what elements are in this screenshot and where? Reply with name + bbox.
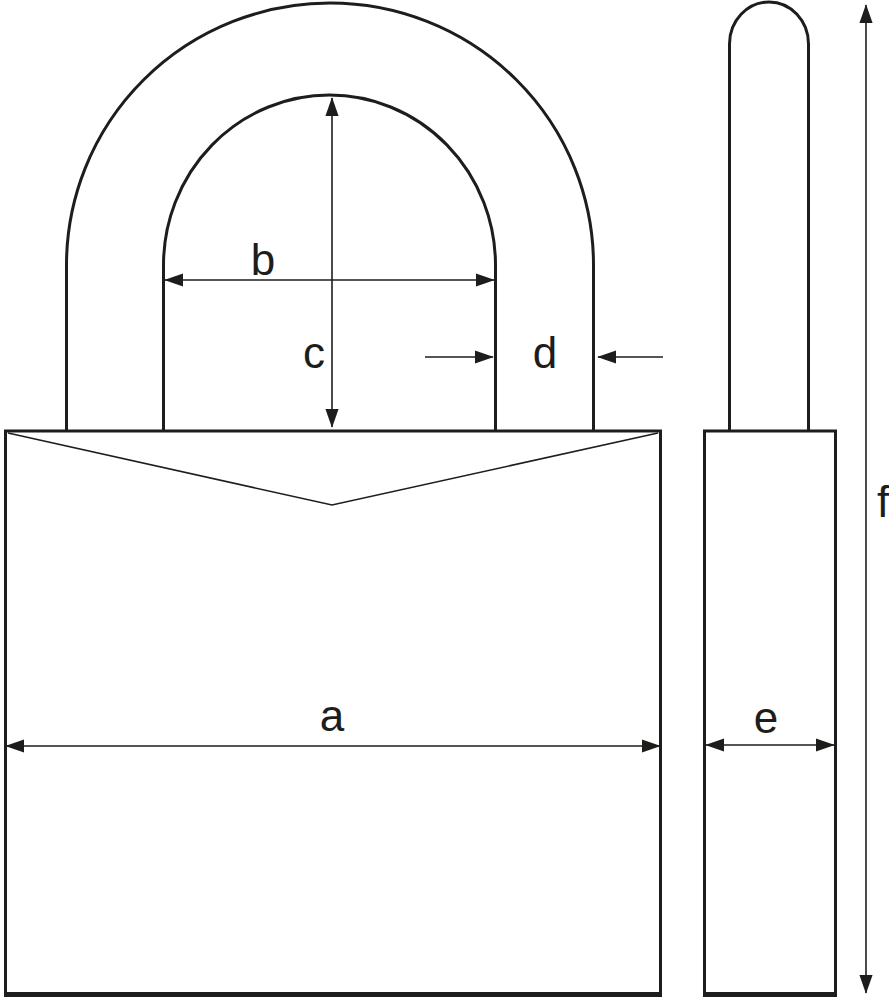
dimension-c: c (303, 98, 332, 427)
dimension-e: e (706, 693, 834, 745)
dimension-f-label: f (877, 477, 889, 526)
padlock-dimension-diagram: a b c d e f (0, 0, 889, 1000)
dimension-b-label: b (251, 235, 275, 284)
diagram-canvas: a b c d e f (0, 0, 889, 1000)
side-shackle (730, 2, 809, 431)
dimension-a: a (6, 691, 660, 746)
dimension-d: d (425, 328, 663, 377)
padlock-front-view (4, 3, 662, 994)
front-shackle-inner-arc (164, 95, 496, 431)
dimension-f: f (866, 5, 889, 993)
dimension-a-label: a (320, 691, 345, 740)
front-shackle-outer-arc (67, 3, 594, 431)
front-body-v-notch (8, 433, 658, 505)
dimension-b: b (165, 235, 494, 284)
dimension-d-label: d (533, 328, 557, 377)
dimension-e-label: e (754, 693, 778, 742)
dimension-c-label: c (303, 328, 325, 377)
padlock-side-view (703, 2, 837, 995)
